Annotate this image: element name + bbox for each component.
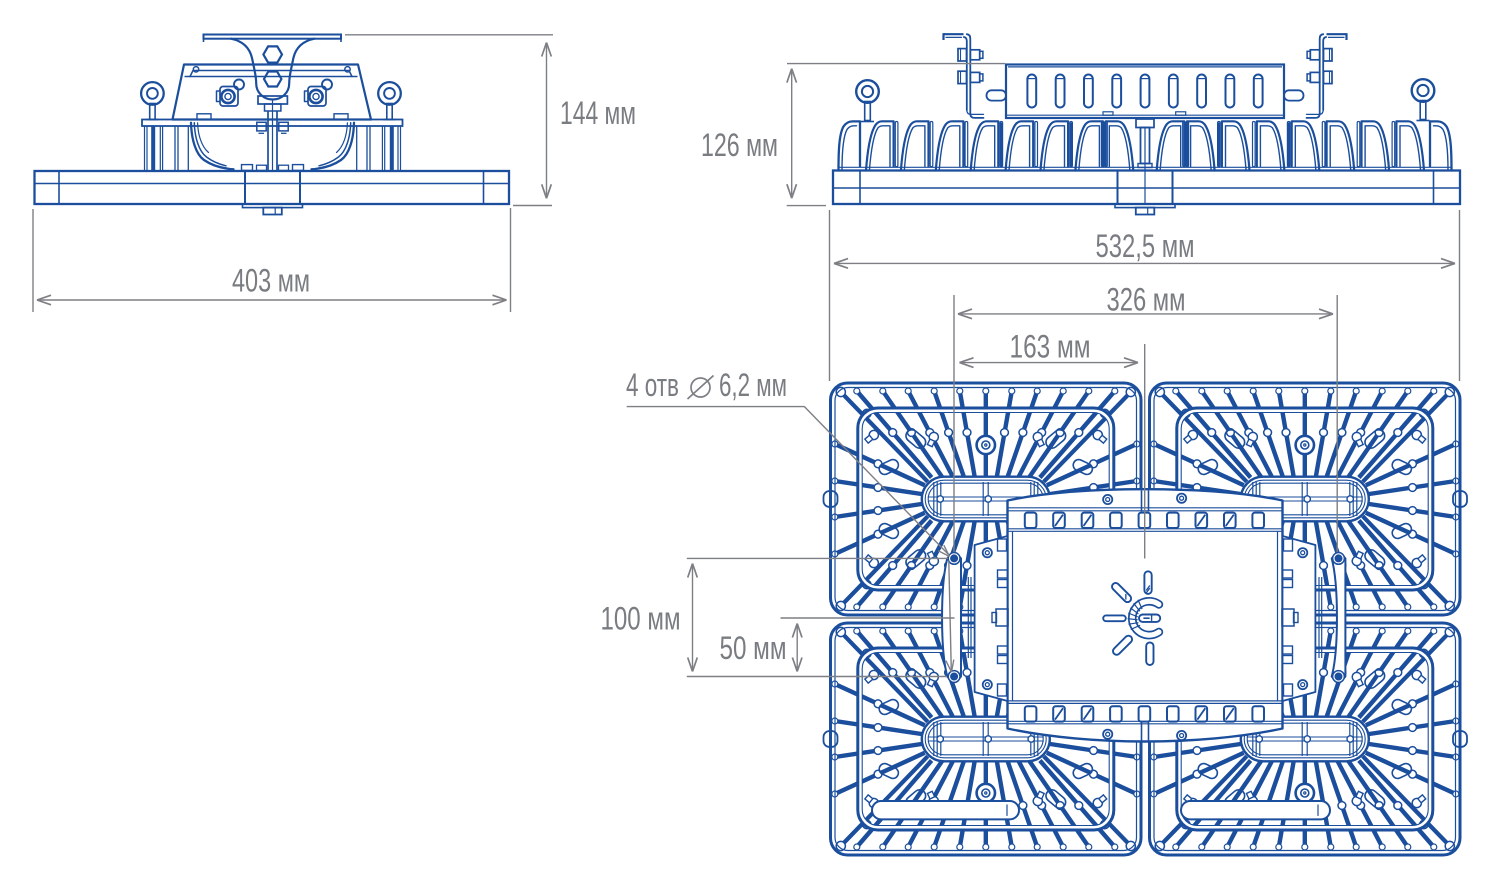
- svg-text:126 мм: 126 мм: [701, 127, 778, 163]
- svg-text:6,2 мм: 6,2 мм: [719, 367, 787, 403]
- svg-text:50 мм: 50 мм: [720, 630, 787, 666]
- svg-text:326 мм: 326 мм: [1107, 282, 1186, 318]
- svg-text:100 мм: 100 мм: [601, 601, 681, 637]
- svg-text:403 мм: 403 мм: [232, 263, 310, 299]
- svg-text:532,5 мм: 532,5 мм: [1096, 228, 1195, 264]
- svg-text:163 мм: 163 мм: [1010, 329, 1091, 365]
- svg-text:4 отв: 4 отв: [626, 367, 679, 403]
- svg-text:144 мм: 144 мм: [560, 95, 636, 131]
